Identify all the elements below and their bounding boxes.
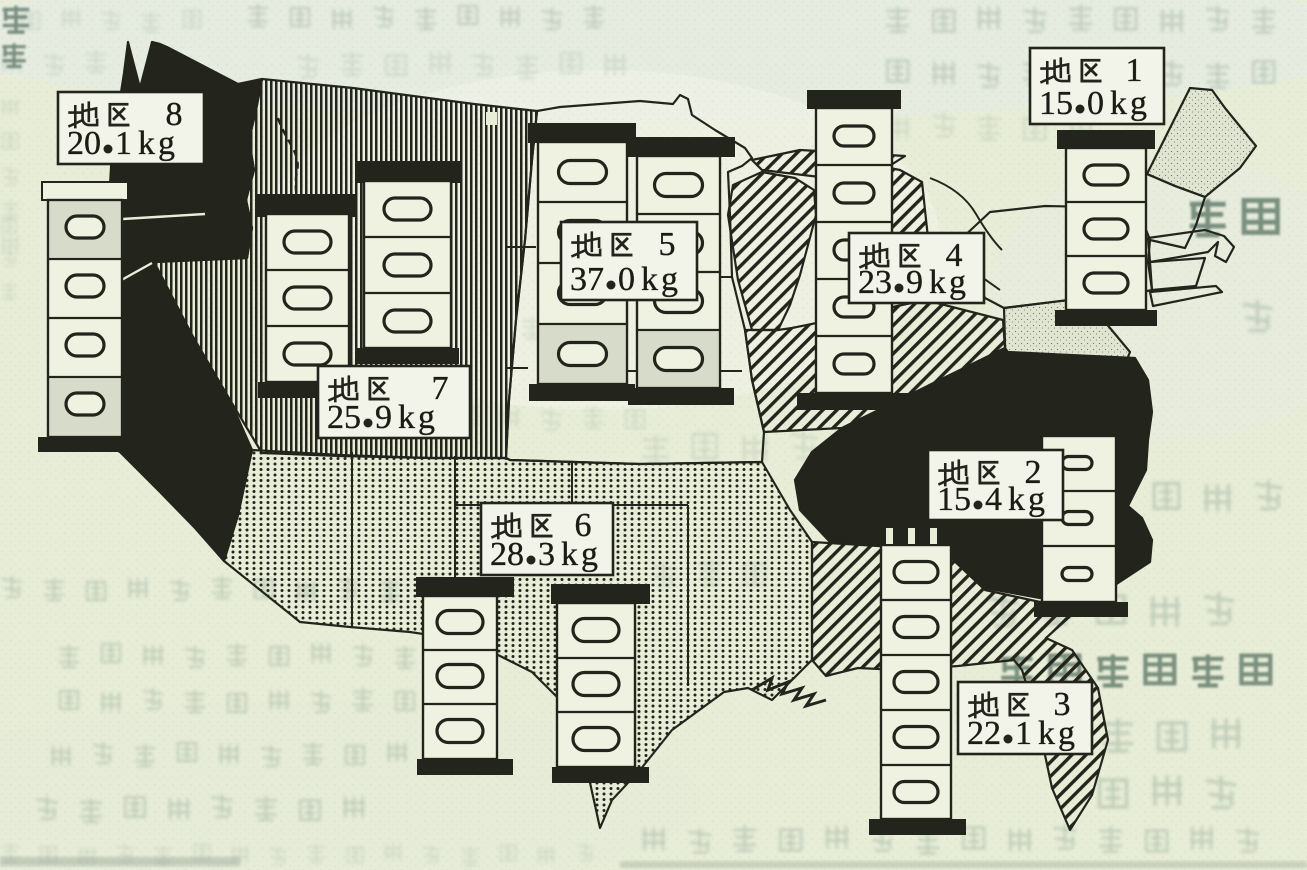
svg-text:1: 1 [115, 125, 132, 162]
svg-text:kg: kg [138, 125, 178, 162]
svg-text:4: 4 [985, 481, 1002, 518]
svg-text:kg: kg [561, 536, 601, 573]
svg-text:0: 0 [618, 261, 635, 298]
svg-text:22: 22 [967, 715, 1001, 752]
svg-text:kg: kg [641, 261, 681, 298]
svg-text:5: 5 [659, 226, 676, 263]
svg-text:kg: kg [929, 264, 969, 301]
svg-text:15: 15 [937, 481, 971, 518]
svg-text:9: 9 [906, 264, 923, 301]
svg-text:kg: kg [1110, 85, 1150, 122]
svg-text:kg: kg [398, 399, 438, 436]
svg-text:1: 1 [1126, 52, 1143, 89]
svg-text:kg: kg [1038, 715, 1078, 752]
svg-text:15: 15 [1039, 85, 1073, 122]
svg-text:28: 28 [490, 536, 524, 573]
svg-text:kg: kg [1008, 481, 1048, 518]
svg-text:1: 1 [1015, 715, 1032, 752]
svg-text:23: 23 [858, 264, 892, 301]
svg-text:25: 25 [327, 399, 361, 436]
svg-text:9: 9 [375, 399, 392, 436]
svg-text:0: 0 [1087, 85, 1104, 122]
svg-text:37: 37 [570, 261, 604, 298]
svg-text:20: 20 [67, 125, 101, 162]
svg-text:3: 3 [538, 536, 555, 573]
